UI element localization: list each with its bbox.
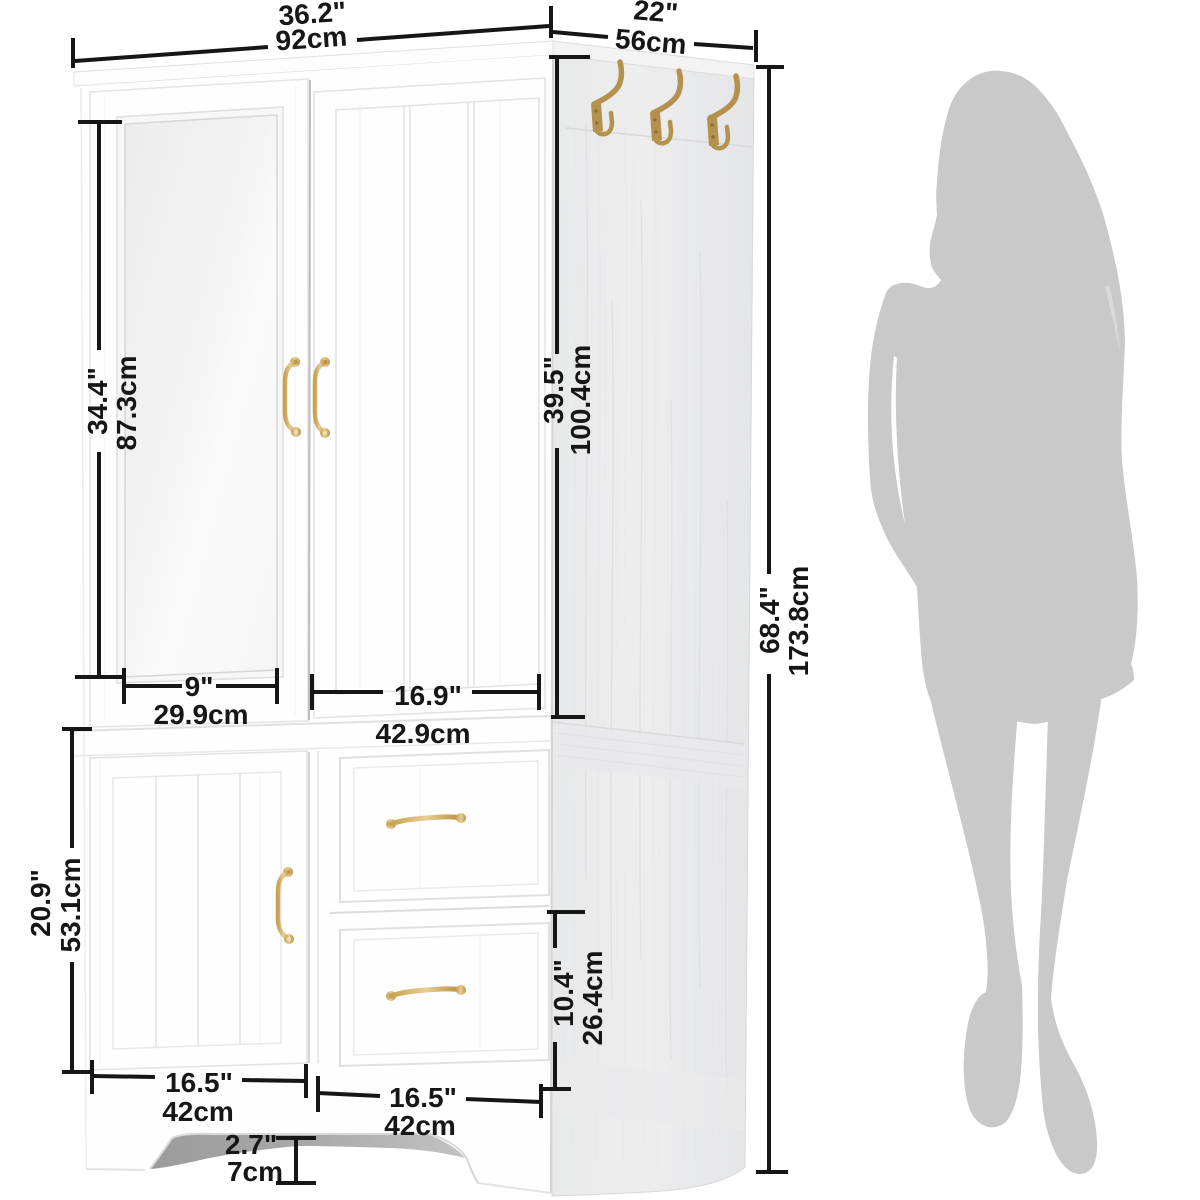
svg-text:20.9": 20.9" — [25, 869, 56, 937]
svg-text:34.4": 34.4" — [82, 367, 113, 435]
svg-text:42.9cm: 42.9cm — [376, 718, 471, 749]
svg-text:16.9": 16.9" — [394, 680, 462, 711]
svg-text:100.4cm: 100.4cm — [565, 345, 596, 456]
svg-text:56cm: 56cm — [614, 23, 688, 60]
svg-text:10.4": 10.4" — [548, 959, 579, 1027]
svg-text:29.9cm: 29.9cm — [154, 699, 249, 730]
svg-text:53.1cm: 53.1cm — [55, 858, 86, 953]
svg-text:87.3cm: 87.3cm — [111, 356, 142, 451]
svg-text:26.4cm: 26.4cm — [577, 951, 608, 1046]
svg-text:173.8cm: 173.8cm — [783, 566, 814, 677]
svg-text:42cm: 42cm — [384, 1110, 456, 1141]
svg-text:92cm: 92cm — [275, 21, 349, 57]
svg-text:7cm: 7cm — [227, 1156, 283, 1187]
svg-text:68.4": 68.4" — [754, 586, 785, 654]
svg-text:9": 9" — [185, 671, 214, 702]
svg-text:16.5": 16.5" — [389, 1082, 457, 1113]
svg-text:16.5": 16.5" — [165, 1067, 233, 1098]
svg-text:42cm: 42cm — [162, 1096, 234, 1127]
